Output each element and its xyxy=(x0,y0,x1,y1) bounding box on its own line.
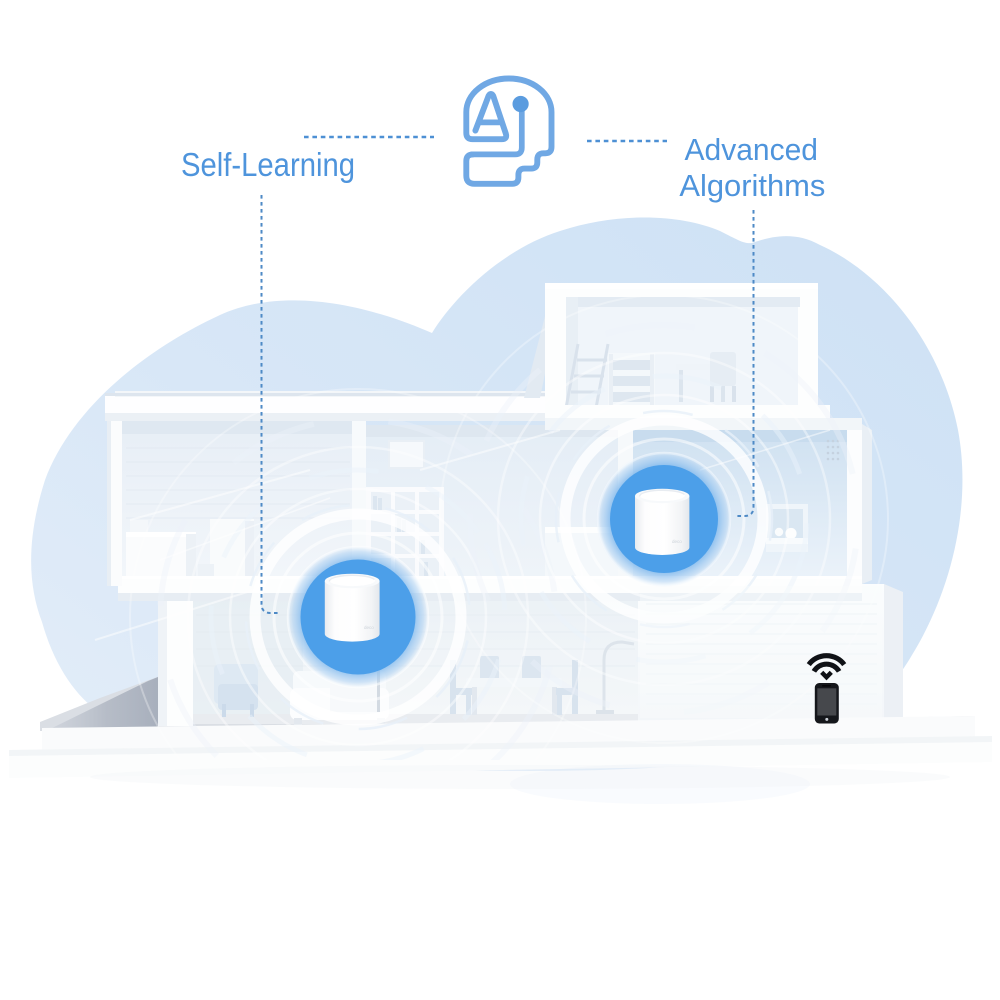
svg-text:deco: deco xyxy=(672,539,682,544)
svg-text:Algorithms: Algorithms xyxy=(679,168,825,203)
svg-text:Self-Learning: Self-Learning xyxy=(181,146,355,183)
svg-text:deco: deco xyxy=(364,625,374,630)
svg-text:Advanced: Advanced xyxy=(685,132,819,167)
